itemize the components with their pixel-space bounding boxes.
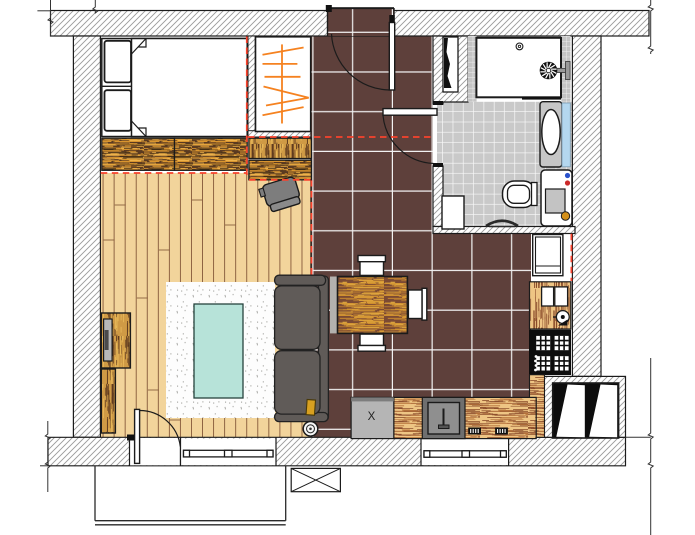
svg-text:X: X: [368, 411, 376, 423]
